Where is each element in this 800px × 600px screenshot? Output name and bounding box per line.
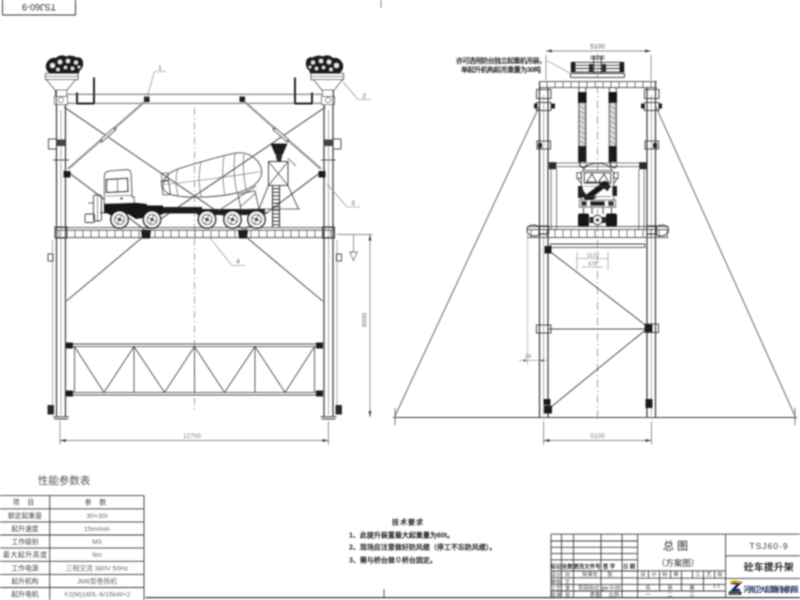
svg-text:3、需与桥台做０桥台固定。: 3、需与桥台做０桥台固定。 <box>349 556 437 565</box>
svg-text:额定起重量: 额定起重量 <box>8 511 42 520</box>
svg-text:JM8型卷扬机: JM8型卷扬机 <box>77 576 117 585</box>
svg-text:性能参数表: 性能参数表 <box>38 474 91 487</box>
svg-text:工作级别: 工作级别 <box>11 537 38 546</box>
svg-text:起升速度: 起升速度 <box>11 524 38 533</box>
svg-text:签 字: 签 字 <box>602 562 616 570</box>
svg-text:KUWEI: KUWEI <box>730 591 739 595</box>
svg-text:计: 计 <box>651 570 656 578</box>
svg-text:最大起升高度: 最大起升高度 <box>3 550 47 559</box>
svg-text:砼车提升架: 砼车提升架 <box>744 562 794 574</box>
svg-text:审: 审 <box>673 570 678 578</box>
svg-text:质量: 质量 <box>590 590 600 598</box>
svg-text:工艺: 工艺 <box>551 585 561 592</box>
svg-text:2: 2 <box>362 93 366 100</box>
svg-text:标记: 标记 <box>550 562 562 570</box>
svg-text:王: 王 <box>565 578 570 585</box>
svg-text:三: 三 <box>689 591 694 598</box>
svg-text:比例: 比例 <box>609 590 619 598</box>
svg-text:第: 第 <box>689 584 694 592</box>
svg-text:TSJ60-9: TSJ60-9 <box>749 541 788 551</box>
svg-text:批: 批 <box>717 570 722 578</box>
svg-text:批准: 批准 <box>551 590 561 598</box>
svg-text:4: 4 <box>236 259 240 266</box>
svg-text:工: 工 <box>695 571 700 578</box>
svg-text:总图: 总图 <box>663 539 691 553</box>
svg-text:设: 设 <box>640 570 645 578</box>
svg-text:起升电机: 起升电机 <box>11 590 38 599</box>
svg-text:共: 共 <box>645 584 650 592</box>
svg-text:张: 张 <box>667 584 673 592</box>
svg-text:李: 李 <box>565 584 570 592</box>
svg-text:Y2(M)160L-6/15kW×2: Y2(M)160L-6/15kW×2 <box>64 592 131 599</box>
svg-text:参 数: 参 数 <box>85 498 109 507</box>
svg-text:9000: 9000 <box>362 312 369 327</box>
svg-text:（方案图）: （方案图） <box>657 558 700 568</box>
svg-text:刘: 刘 <box>565 571 570 579</box>
svg-text:更改文件号: 更改文件号 <box>574 562 602 570</box>
svg-text:1: 1 <box>158 65 162 72</box>
svg-text:亦可选用防台独立起重机吊装，: 亦可选用防台独立起重机吊装， <box>456 56 546 65</box>
svg-text:一: 一 <box>645 592 650 598</box>
svg-text:5100: 5100 <box>590 44 605 51</box>
svg-text:三相交流 380V 50Hz: 三相交流 380V 50Hz <box>66 563 129 572</box>
svg-text:处数: 处数 <box>561 562 573 570</box>
svg-text:张: 张 <box>565 590 571 598</box>
svg-text:日 期: 日 期 <box>623 562 636 570</box>
svg-text:M3: M3 <box>92 539 102 546</box>
svg-text:标: 标 <box>662 570 667 578</box>
svg-text:艺: 艺 <box>706 571 711 578</box>
svg-text:15m/min: 15m/min <box>84 526 110 533</box>
svg-text:3: 3 <box>351 200 355 207</box>
svg-text:2、现场应注意做好防风缆（停工不忘防风缆）。: 2、现场应注意做好防风缆（停工不忘防风缆）。 <box>349 543 496 552</box>
svg-text:工作电源: 工作电源 <box>11 563 38 572</box>
svg-text:河南卫大起重机械有限: 河南卫大起重机械有限 <box>743 585 800 594</box>
svg-text:单起升机构起吊重量为30吨: 单起升机构起吊重量为30吨 <box>461 65 541 74</box>
svg-text:二: 二 <box>667 592 672 598</box>
svg-text:478: 478 <box>588 262 597 268</box>
svg-text:12700: 12700 <box>183 433 201 440</box>
svg-text:审核: 审核 <box>551 577 561 585</box>
svg-text:阶段标记: 阶段标记 <box>579 584 600 592</box>
svg-text:技术要求: 技术要求 <box>392 518 424 527</box>
svg-text:9m: 9m <box>92 552 102 559</box>
svg-text:5100: 5100 <box>590 433 605 440</box>
svg-text:TSJ60-9: TSJ60-9 <box>22 2 56 12</box>
svg-text:1:1: 1:1 <box>713 584 720 590</box>
svg-text:标准化: 标准化 <box>582 570 598 578</box>
svg-text:设计: 设计 <box>551 571 561 579</box>
svg-text:1、此提升装置最大起重量为60t。: 1、此提升装置最大起重量为60t。 <box>349 531 454 540</box>
svg-text:批: 批 <box>607 570 612 578</box>
svg-text:3122: 3122 <box>587 253 599 259</box>
svg-text:30+30t: 30+30t <box>87 513 108 520</box>
svg-text:项 目: 项 目 <box>13 499 37 507</box>
svg-text:起升机构: 起升机构 <box>11 576 38 585</box>
svg-text:24: 24 <box>525 354 531 360</box>
svg-text:gw 9-08: gw 9-08 <box>602 586 621 592</box>
